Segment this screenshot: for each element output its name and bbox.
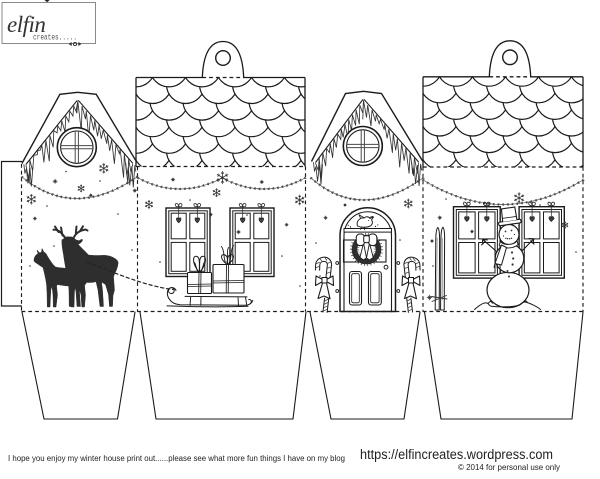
svg-text:creates.....: creates..... <box>33 33 77 43</box>
svg-text:I hope you enjoy my winter hou: I hope you enjoy my winter house print o… <box>8 454 345 463</box>
svg-text:https://elfincreates.wordpress: https://elfincreates.wordpress.com <box>360 447 553 462</box>
svg-text:© 2014 for personal use only: © 2014 for personal use only <box>458 462 561 472</box>
